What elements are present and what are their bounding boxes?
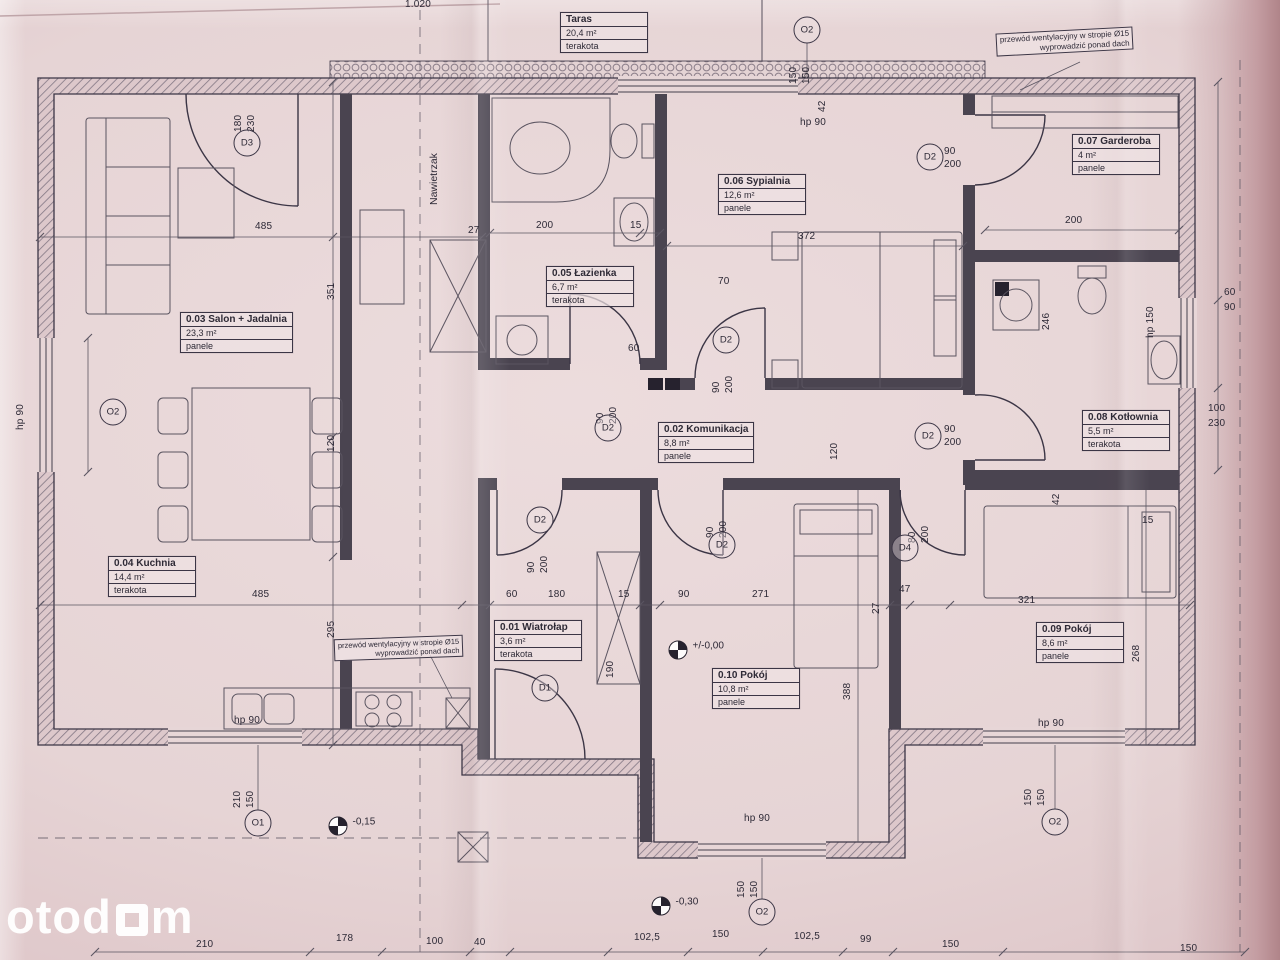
room-floor: panele bbox=[713, 696, 799, 708]
room-name: 0.10 Pokój bbox=[713, 669, 799, 683]
dimension-label: hp 90 bbox=[16, 404, 26, 430]
tv-bench bbox=[360, 210, 404, 304]
top-insulation-band bbox=[330, 61, 985, 78]
room-name: 0.05 Łazienka bbox=[547, 267, 633, 281]
dimension-label: 178 bbox=[336, 934, 353, 944]
door-window-marker: D2 bbox=[709, 532, 736, 559]
dimension-label: 200 bbox=[944, 438, 961, 448]
door-window-marker: D3 bbox=[234, 130, 261, 157]
level-marker-icon bbox=[329, 817, 348, 836]
dimension-label: 150 bbox=[737, 881, 747, 898]
dining-table bbox=[158, 388, 342, 542]
wardrobe-wiatrolap bbox=[597, 552, 640, 684]
otodom-logo-square-o bbox=[116, 904, 148, 936]
room-name: 0.09 Pokój bbox=[1037, 623, 1123, 637]
room-label: 0.01 Wiatrołap 3,6 m² terakota bbox=[494, 620, 582, 661]
room-name: 0.02 Komunikacja bbox=[659, 423, 753, 437]
dimension-label: 90 bbox=[1224, 303, 1236, 313]
dimension-label: 90 bbox=[678, 590, 690, 600]
dimension-label: 150 bbox=[1024, 789, 1034, 806]
dimension-label: 485 bbox=[255, 222, 272, 232]
room-floor: terakota bbox=[495, 648, 581, 660]
dimension-label: 321 bbox=[1018, 596, 1035, 606]
room-name: 0.04 Kuchnia bbox=[109, 557, 195, 571]
room-area: 12,6 m² bbox=[719, 189, 805, 202]
nawietrzak-label: Nawietrzak bbox=[428, 153, 440, 205]
room-label: 0.03 Salon + Jadalnia 23,3 m² panele bbox=[180, 312, 293, 353]
dimension-label: 27 bbox=[872, 602, 882, 614]
dimension-label: 102,5 bbox=[794, 932, 820, 942]
dimension-label: 210 bbox=[233, 791, 243, 808]
dimension-label: 351 bbox=[327, 283, 337, 300]
room-name: 0.03 Salon + Jadalnia bbox=[181, 313, 292, 327]
room-name: 0.06 Sypialnia bbox=[719, 175, 805, 189]
dimension-label: 120 bbox=[327, 435, 337, 452]
level-value: -0,15 bbox=[353, 817, 376, 828]
post-symbol bbox=[458, 832, 488, 862]
room-area: 10,8 m² bbox=[713, 683, 799, 696]
dimension-label: 150 bbox=[1037, 789, 1047, 806]
dimension-label: 485 bbox=[252, 590, 269, 600]
dimension-label: 200 bbox=[921, 526, 931, 543]
room-label: 0.05 Łazienka 6,7 m² terakota bbox=[546, 266, 634, 307]
room-label: 0.04 Kuchnia 14,4 m² terakota bbox=[108, 556, 196, 597]
dimension-label: 40 bbox=[474, 938, 486, 948]
door-window-marker: D2 bbox=[527, 507, 554, 534]
room-area: 23,3 m² bbox=[181, 327, 292, 340]
door-window-marker: D2 bbox=[917, 144, 944, 171]
door-window-marker: O2 bbox=[794, 17, 821, 44]
room-floor: terakota bbox=[109, 584, 195, 596]
room-name: 0.01 Wiatrołap bbox=[495, 621, 581, 635]
door-window-marker: D1 bbox=[532, 675, 559, 702]
dimension-label: 268 bbox=[1132, 645, 1142, 662]
dimension-label: 150 bbox=[750, 881, 760, 898]
otodom-logo-text-left: otod bbox=[6, 893, 112, 940]
door-window-marker: D4 bbox=[892, 535, 919, 562]
room-name: 0.07 Garderoba bbox=[1073, 135, 1159, 149]
room-area: 4 m² bbox=[1073, 149, 1159, 162]
level-value: -0,30 bbox=[676, 897, 699, 908]
dimension-label: 102,5 bbox=[634, 933, 660, 943]
dimension-label: 246 bbox=[1042, 313, 1052, 330]
level-marker-icon bbox=[652, 897, 671, 916]
dimension-label: 15 bbox=[630, 221, 642, 231]
dimension-label: 60 bbox=[1224, 288, 1236, 298]
dimension-label: 271 bbox=[752, 590, 769, 600]
dimension-label: 70 bbox=[718, 277, 730, 287]
washing-machine bbox=[496, 316, 548, 364]
dimension-label: 120 bbox=[830, 443, 840, 460]
room-name: 0.08 Kotłownia bbox=[1083, 411, 1169, 425]
room-floor: panele bbox=[181, 340, 292, 352]
dimension-label: 200 bbox=[1065, 216, 1082, 226]
dimension-label: hp 150 bbox=[1146, 306, 1156, 338]
dimension-label: 1.020 bbox=[405, 0, 431, 10]
dimension-label: 15 bbox=[618, 590, 630, 600]
coffee-table bbox=[178, 168, 234, 238]
toilet-kotlownia bbox=[1078, 266, 1106, 314]
door-window-marker: O1 bbox=[245, 810, 272, 837]
windows bbox=[36, 76, 1197, 860]
dimension-label: 27 bbox=[468, 226, 480, 236]
dimension-label: 90 bbox=[527, 561, 537, 573]
room-floor: panele bbox=[659, 450, 753, 462]
room-area: 14,4 m² bbox=[109, 571, 195, 584]
room-name: Taras bbox=[561, 13, 647, 27]
room-label: 0.09 Pokój 8,6 m² panele bbox=[1036, 622, 1124, 663]
room-floor: terakota bbox=[561, 40, 647, 52]
dimension-label: 200 bbox=[536, 221, 553, 231]
vent-shaft bbox=[430, 240, 486, 352]
dimension-label: 200 bbox=[725, 376, 735, 393]
door-window-marker: D2 bbox=[595, 415, 622, 442]
dimension-label: hp 90 bbox=[800, 118, 826, 128]
level-marker: +/-0,00 bbox=[669, 641, 688, 660]
bathtub bbox=[492, 98, 610, 202]
door-window-marker: O2 bbox=[100, 399, 127, 426]
sink-kotlownia bbox=[1148, 336, 1180, 384]
dimension-label: 99 bbox=[860, 935, 872, 945]
room-floor: terakota bbox=[547, 294, 633, 306]
dimension-label: 100 bbox=[426, 937, 443, 947]
room-area: 8,6 m² bbox=[1037, 637, 1123, 650]
otodom-logo-text-right: m bbox=[151, 893, 194, 940]
dimension-label: 90 bbox=[944, 425, 956, 435]
room-area: 20,4 m² bbox=[561, 27, 647, 40]
dimension-label: 60 bbox=[506, 590, 518, 600]
room-label: 0.06 Sypialnia 12,6 m² panele bbox=[718, 174, 806, 215]
dimension-label: 150 bbox=[942, 940, 959, 950]
dimension-label: 180 bbox=[548, 590, 565, 600]
room-label: 0.10 Pokój 10,8 m² panele bbox=[712, 668, 800, 709]
room-floor: terakota bbox=[1083, 438, 1169, 450]
dimension-label: 210 bbox=[196, 940, 213, 950]
dimension-label: 150 bbox=[789, 67, 799, 84]
room-area: 3,6 m² bbox=[495, 635, 581, 648]
dimension-label: hp 90 bbox=[1038, 719, 1064, 729]
dimension-label: 295 bbox=[327, 621, 337, 638]
door-window-marker: O2 bbox=[1042, 809, 1069, 836]
dimension-label: 90 bbox=[712, 381, 722, 393]
dimension-label: hp 90 bbox=[234, 716, 260, 726]
otodom-logo: otod m bbox=[6, 893, 194, 940]
dimension-label: 200 bbox=[540, 556, 550, 573]
room-area: 5,5 m² bbox=[1083, 425, 1169, 438]
dimension-label: 200 bbox=[944, 160, 961, 170]
dimension-label: 42 bbox=[1052, 493, 1062, 505]
dimension-label: 47 bbox=[899, 585, 911, 595]
level-marker: -0,15 bbox=[329, 817, 348, 836]
room-label: 0.02 Komunikacja 8,8 m² panele bbox=[658, 422, 754, 463]
room-label: Taras 20,4 m² terakota bbox=[560, 12, 648, 53]
room-floor: panele bbox=[719, 202, 805, 214]
dimension-label: 150 bbox=[1180, 944, 1197, 954]
toilet bbox=[611, 124, 654, 158]
door-window-marker: O2 bbox=[749, 899, 776, 926]
dimension-label: 150 bbox=[246, 791, 256, 808]
room-label: 0.08 Kotłownia 5,5 m² terakota bbox=[1082, 410, 1170, 451]
room-area: 8,8 m² bbox=[659, 437, 753, 450]
room-area: 6,7 m² bbox=[547, 281, 633, 294]
dimension-label: 15 bbox=[1142, 516, 1154, 526]
door-window-marker: D2 bbox=[915, 423, 942, 450]
room-floor: panele bbox=[1073, 162, 1159, 174]
bed-sypialnia bbox=[772, 232, 962, 388]
dimension-label: 388 bbox=[843, 683, 853, 700]
vent-note: przewód wentylacyjny w stropie Ø15 wypro… bbox=[334, 635, 464, 661]
level-marker: -0,30 bbox=[652, 897, 671, 916]
dimension-label: 150 bbox=[712, 930, 729, 940]
dimension-label: 150 bbox=[802, 67, 812, 84]
dimension-label: 230 bbox=[1208, 419, 1225, 429]
dimension-label: hp 90 bbox=[744, 814, 770, 824]
dimension-label: 100 bbox=[1208, 404, 1225, 414]
room-floor: panele bbox=[1037, 650, 1123, 662]
door-window-marker: D2 bbox=[713, 327, 740, 354]
wardrobe-garderoba bbox=[992, 96, 1178, 128]
dimension-label: 42 bbox=[818, 100, 828, 112]
dimension-label: 60 bbox=[628, 344, 640, 354]
dimension-label: 190 bbox=[606, 661, 616, 678]
bed-pokoj10 bbox=[794, 504, 878, 668]
room-label: 0.07 Garderoba 4 m² panele bbox=[1072, 134, 1160, 175]
level-value: +/-0,00 bbox=[693, 641, 724, 652]
dimension-label: 372 bbox=[798, 232, 815, 242]
level-marker-icon bbox=[669, 641, 688, 660]
flue-symbols bbox=[648, 282, 1009, 390]
sofa bbox=[86, 118, 170, 314]
dimension-label: 90 bbox=[944, 147, 956, 157]
